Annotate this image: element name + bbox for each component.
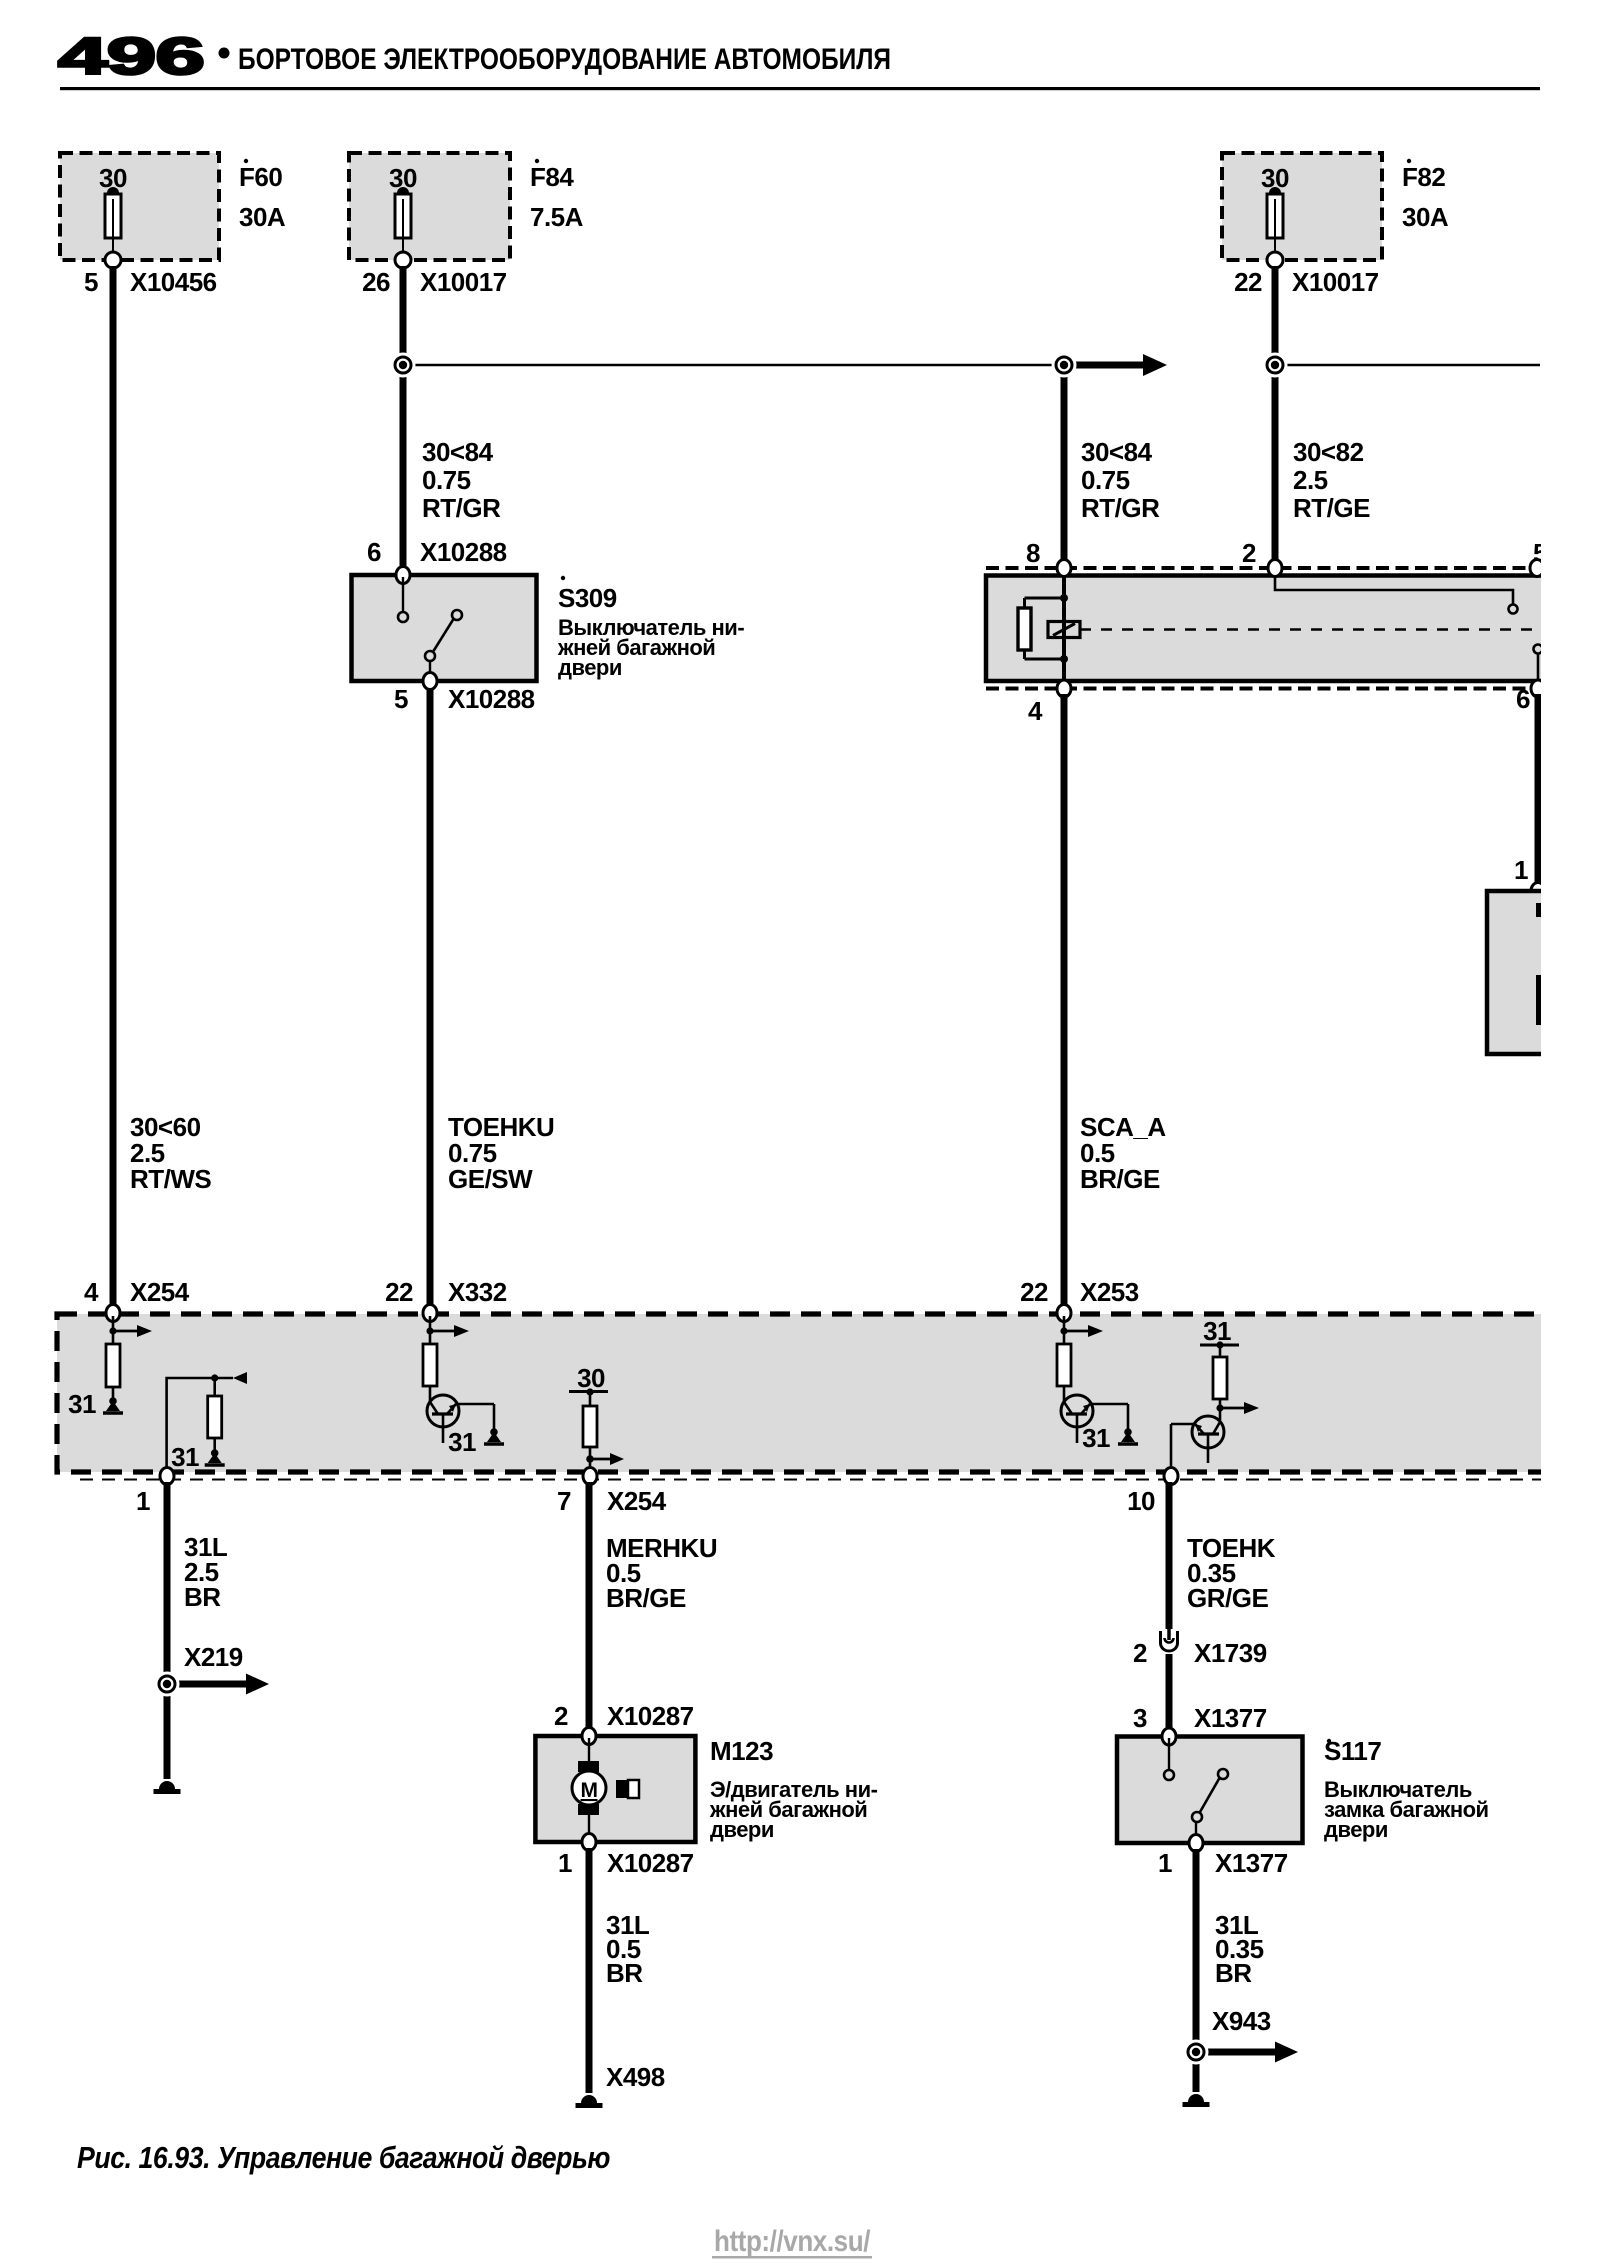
svg-text:30<84: 30<84 [422,437,494,467]
svg-text:X10288: X10288 [448,684,535,714]
svg-text:X10288: X10288 [420,537,507,567]
svg-text:X10017: X10017 [1292,267,1379,297]
svg-text:31: 31 [1203,1316,1231,1346]
svg-text:2.5: 2.5 [1293,465,1328,495]
svg-text:BR: BR [184,1582,221,1612]
svg-text:31: 31 [448,1427,476,1457]
svg-text:30A: 30A [239,202,286,232]
svg-text:F82: F82 [1402,162,1445,192]
svg-text:1: 1 [1158,1848,1172,1878]
svg-text:6: 6 [1516,684,1530,714]
svg-text:X1377: X1377 [1215,1848,1288,1878]
svg-text:http://vnx.su/: http://vnx.su/ [714,2225,871,2258]
svg-text:4: 4 [84,1277,99,1307]
svg-text:30<84: 30<84 [1081,437,1153,467]
svg-text:X219: X219 [184,1642,243,1672]
svg-text:RT/GR: RT/GR [1081,493,1160,523]
svg-text:30<82: 30<82 [1293,437,1364,467]
svg-text:22: 22 [385,1277,413,1307]
svg-text:30: 30 [577,1363,605,1393]
svg-text:RT/GR: RT/GR [422,493,501,523]
svg-text:6: 6 [367,537,381,567]
svg-text:F60: F60 [239,162,282,192]
svg-text:22: 22 [1234,267,1262,297]
svg-text:S309: S309 [558,583,617,613]
svg-text:GE/SW: GE/SW [448,1164,533,1194]
svg-text:BR: BR [1215,1958,1252,1988]
svg-text:X10456: X10456 [130,267,217,297]
svg-text:26: 26 [362,267,390,297]
svg-text:X1739: X1739 [1194,1638,1267,1668]
svg-text:10: 10 [1127,1486,1155,1516]
svg-text:7.5A: 7.5A [530,202,584,232]
svg-text:X943: X943 [1212,2006,1271,2036]
svg-text:RT/GE: RT/GE [1293,493,1370,523]
svg-text:X254: X254 [607,1486,667,1516]
svg-text:X253: X253 [1080,1277,1139,1307]
svg-text:1: 1 [1514,855,1528,885]
svg-text:BR: BR [606,1958,643,1988]
svg-text:2: 2 [1242,538,1256,568]
svg-text:3: 3 [1133,1703,1147,1733]
svg-text:X1377: X1377 [1194,1703,1267,1733]
svg-text:M: M [581,1779,598,1802]
svg-text:31: 31 [171,1442,199,1472]
svg-text:F84: F84 [530,162,574,192]
svg-text:BR/GE: BR/GE [1080,1164,1160,1194]
svg-text:M123: M123 [710,1736,773,1766]
svg-text:БОРТОВОЕ ЭЛЕКТРООБОРУДОВАНИЕ А: БОРТОВОЕ ЭЛЕКТРООБОРУДОВАНИЕ АВТОМОБИЛЯ [238,43,891,76]
svg-text:2: 2 [1133,1638,1147,1668]
svg-text:Рис. 16.93. Управление багажно: Рис. 16.93. Управление багажной дверью [77,2140,610,2175]
svg-text:X10287: X10287 [607,1701,694,1731]
svg-text:1: 1 [136,1486,150,1516]
svg-text:BR/GE: BR/GE [606,1583,686,1613]
svg-text:X332: X332 [448,1277,507,1307]
svg-text:31: 31 [1082,1423,1110,1453]
svg-text:2: 2 [554,1701,568,1731]
svg-text:X10017: X10017 [420,267,507,297]
svg-text:двери: двери [558,655,622,680]
svg-text:двери: двери [1324,1817,1388,1842]
svg-text:1: 1 [558,1848,572,1878]
svg-text:496: 496 [58,28,204,86]
svg-text:RT/WS: RT/WS [130,1164,211,1194]
svg-text:X10287: X10287 [607,1848,694,1878]
svg-text:4: 4 [1028,696,1043,726]
svg-text:GR/GE: GR/GE [1187,1583,1268,1613]
svg-text:31: 31 [68,1389,96,1419]
svg-text:8: 8 [1026,538,1040,568]
svg-text:5: 5 [84,267,98,297]
svg-text:S117: S117 [1324,1736,1381,1766]
svg-text:X254: X254 [130,1277,190,1307]
svg-text:7: 7 [557,1486,571,1516]
svg-text:22: 22 [1020,1277,1048,1307]
svg-text:5: 5 [394,684,408,714]
svg-text:30A: 30A [1402,202,1449,232]
svg-text:X498: X498 [606,2062,665,2092]
svg-text:двери: двери [710,1817,774,1842]
svg-text:0.75: 0.75 [422,465,471,495]
svg-text:0.75: 0.75 [1081,465,1130,495]
